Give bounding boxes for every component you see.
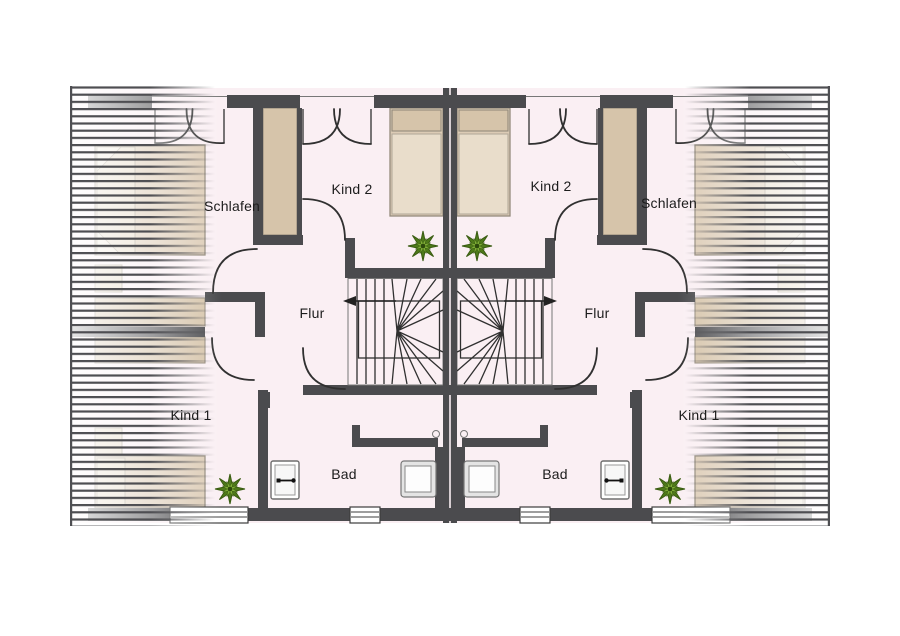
room-label-bad-left: Bad xyxy=(331,466,357,482)
room-label-flur-left: Flur xyxy=(300,305,325,321)
floor-plan-page: Schlafen Schlafen Kind 2 Kind 2 Flur Flu… xyxy=(0,0,900,636)
room-label-flur-right: Flur xyxy=(585,305,610,321)
room-label-kind2-right: Kind 2 xyxy=(531,178,572,194)
room-label-kind1-left: Kind 1 xyxy=(171,407,212,423)
unit-left xyxy=(70,86,450,526)
floor-plan-drawing xyxy=(0,0,900,636)
unit-right xyxy=(450,86,830,526)
room-label-bad-right: Bad xyxy=(542,466,568,482)
room-label-kind1-right: Kind 1 xyxy=(679,407,720,423)
room-label-kind2-left: Kind 2 xyxy=(332,181,373,197)
room-label-schlafen-left: Schlafen xyxy=(204,198,260,214)
room-label-schlafen-right: Schlafen xyxy=(641,195,697,211)
